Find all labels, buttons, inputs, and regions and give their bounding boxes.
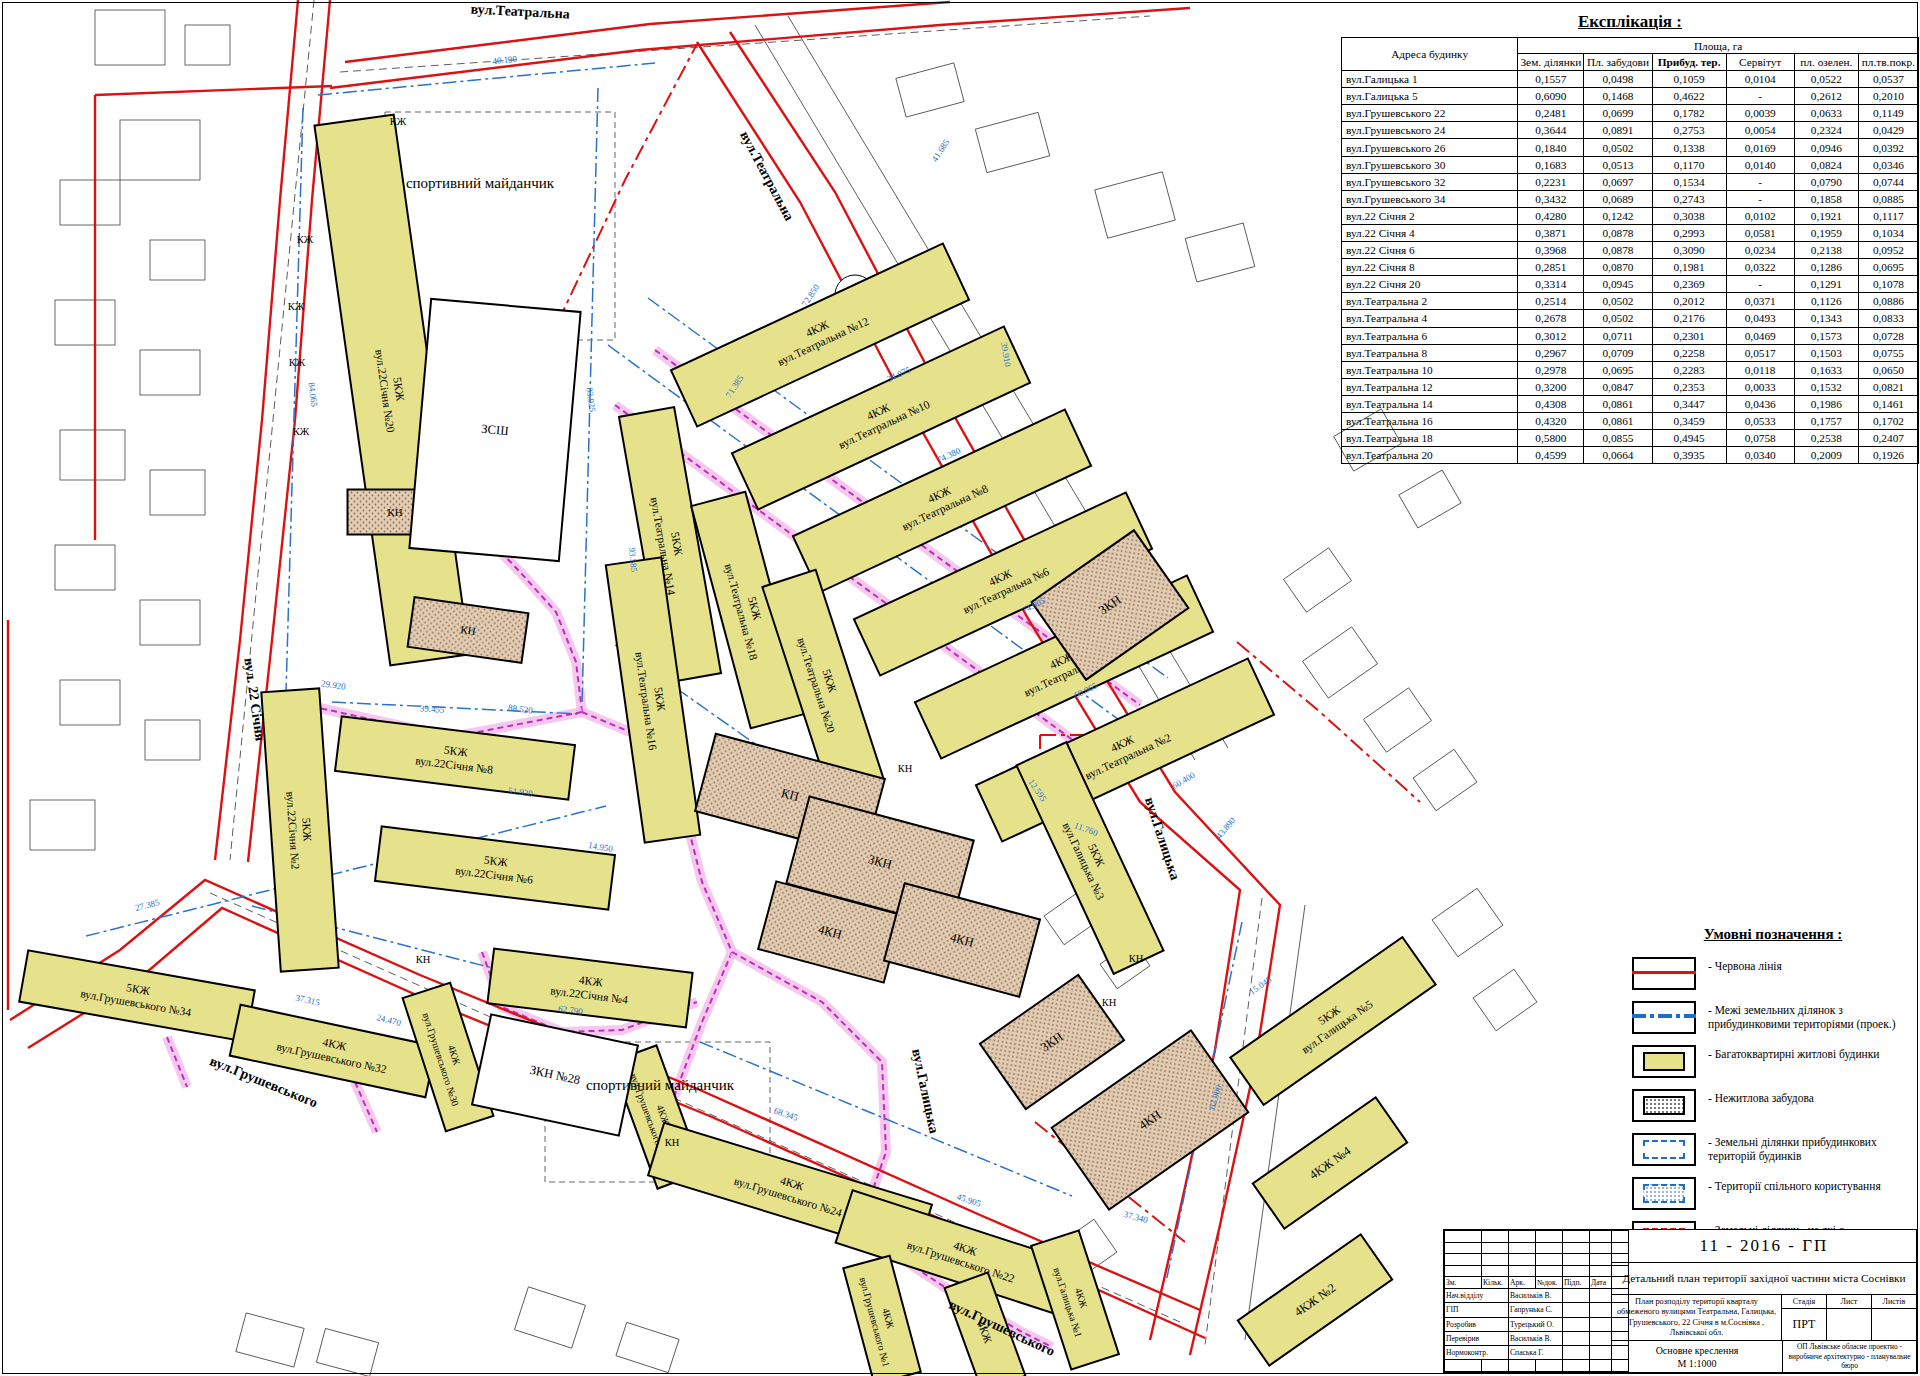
- street-name-label: вул.Галицька: [909, 1047, 942, 1134]
- value-cell: 0,2743: [1652, 190, 1726, 207]
- value-cell: 0,0744: [1858, 173, 1918, 190]
- stage-grid: Стадія Лист Листів ПРТ: [1782, 1295, 1916, 1340]
- dimension-label: 83.925: [585, 387, 598, 413]
- value-cell: 0,3012: [1518, 327, 1584, 344]
- table-row: вул.Грушевського 320,22310,06970,1534-0,…: [1342, 173, 1919, 190]
- address-cell: вул.Театральна 6: [1342, 327, 1518, 344]
- legend-item: - Червона лінія: [1632, 957, 1914, 990]
- value-cell: 0,0878: [1584, 224, 1652, 241]
- value-cell: 0,1338: [1652, 139, 1726, 156]
- title-block: Зм.Кільк.Арк.№док.Підп.ДатаНач.відділуВа…: [1443, 1229, 1917, 1373]
- value-cell: 0,0533: [1726, 412, 1794, 429]
- value-cell: 0,0322: [1726, 259, 1794, 276]
- street-name-label: вул.Театральна: [737, 129, 797, 223]
- drawing-sheet: 5КЖвул.22Січня №204КЖвул.Театральна №124…: [0, 0, 1920, 1376]
- value-cell: 0,2481: [1518, 105, 1584, 122]
- building: ЗКН: [980, 975, 1124, 1109]
- value-cell: 0,4945: [1652, 430, 1726, 447]
- building-type-label: КН: [665, 1137, 680, 1148]
- parcel-outline: [140, 350, 200, 395]
- value-cell: 0,1170: [1652, 156, 1726, 173]
- table-row: вул.Грушевського 220,24810,06990,17820,0…: [1342, 105, 1919, 122]
- dimension-label: 37.315: [294, 993, 321, 1008]
- value-cell: 0,1291: [1794, 276, 1858, 293]
- value-cell: 0,0697: [1584, 173, 1652, 190]
- parcel-outline: [55, 545, 115, 590]
- value-cell: 0,1633: [1794, 361, 1858, 378]
- value-cell: 0,0695: [1584, 361, 1652, 378]
- building-type-label: КЖ: [288, 301, 305, 312]
- value-cell: 0,1702: [1858, 412, 1918, 429]
- value-cell: 0,1503: [1794, 344, 1858, 361]
- value-cell: 0,0870: [1584, 259, 1652, 276]
- parcel-outline: [140, 600, 200, 645]
- address-cell: вул.Театральна 2: [1342, 293, 1518, 310]
- value-cell: 0,2851: [1518, 259, 1584, 276]
- table-row: вул.Грушевського 260,18400,05020,13380,0…: [1342, 139, 1919, 156]
- parcel-outline: [1473, 969, 1537, 1030]
- table-column-header: Пл. забудови: [1584, 54, 1652, 71]
- table-row: вул.22 Січня 40,38710,08780,29930,05810,…: [1342, 224, 1919, 241]
- value-cell: 0,0502: [1584, 293, 1652, 310]
- value-cell: 0,1126: [1794, 293, 1858, 310]
- table-row: вул.Театральна 100,29780,06950,22830,011…: [1342, 361, 1919, 378]
- dimension-label: 27.385: [134, 897, 161, 913]
- value-cell: 0,1059: [1652, 71, 1726, 88]
- value-cell: 0,0469: [1726, 327, 1794, 344]
- parcel-outline: [95, 10, 165, 65]
- buildings: 5КЖвул.22Січня №204КЖвул.Театральна №124…: [19, 115, 1435, 1376]
- stamp-col-header: Кільк.: [1482, 1277, 1509, 1289]
- value-cell: 0,0861: [1584, 412, 1652, 429]
- value-cell: 0,2369: [1652, 276, 1726, 293]
- address-cell: вул.Театральна 8: [1342, 344, 1518, 361]
- legend-item: - Території спільного користування: [1632, 1177, 1914, 1210]
- stage-label: Стадія: [1782, 1295, 1827, 1308]
- building-label: КН: [460, 623, 477, 637]
- parcel-outline: [616, 1322, 679, 1372]
- parcel-outline: [150, 470, 205, 515]
- value-cell: 0,2012: [1652, 293, 1726, 310]
- dimension-label: 68.345: [773, 1106, 800, 1123]
- table-row: вул.22 Січня 60,39680,08780,30900,02340,…: [1342, 242, 1919, 259]
- value-cell: 0,0537: [1858, 71, 1918, 88]
- value-cell: 0,0493: [1726, 310, 1794, 327]
- value-cell: 0,0033: [1726, 378, 1794, 395]
- value-cell: 0,0522: [1794, 71, 1858, 88]
- sheets-value: [1872, 1309, 1916, 1340]
- value-cell: 0,0855: [1584, 430, 1652, 447]
- building: 5КЖвул.Грушевського №34: [19, 950, 255, 1041]
- col-group-header: Площа, га: [1518, 38, 1919, 54]
- parcel-outline: [60, 680, 120, 725]
- value-cell: 0,2978: [1518, 361, 1584, 378]
- value-cell: 0,0039: [1726, 105, 1794, 122]
- address-cell: вул.Грушевського 26: [1342, 139, 1518, 156]
- legend-item: - Земельні ділянки прибудинкових територ…: [1632, 1133, 1914, 1166]
- building-label: 5КЖ: [300, 817, 314, 842]
- signature-name: Гапрунька С.: [1509, 1303, 1563, 1317]
- dimension-label: 29.920: [320, 678, 346, 691]
- value-cell: 0,1840: [1518, 139, 1584, 156]
- legend-label: - Нежитлова забудова: [1708, 1089, 1814, 1105]
- address-cell: вул.Грушевського 24: [1342, 122, 1518, 139]
- table-row: вул.Театральна 140,43080,08610,34470,043…: [1342, 395, 1919, 412]
- value-cell: 0,0517: [1726, 344, 1794, 361]
- street-name-label: вул.Театральна: [470, 1, 570, 21]
- building-type-label: КН: [898, 763, 913, 774]
- value-cell: 0,2514: [1518, 293, 1584, 310]
- value-cell: 0,0392: [1858, 139, 1918, 156]
- value-cell: 0,2407: [1858, 430, 1918, 447]
- parcel-outline: [236, 1313, 304, 1367]
- value-cell: 0,1532: [1794, 378, 1858, 395]
- table-row: вул.Театральна 180,58000,08550,49450,075…: [1342, 430, 1919, 447]
- table-row: вул.Театральна 80,29670,07090,22580,0517…: [1342, 344, 1919, 361]
- building: 4КН: [884, 883, 1040, 997]
- value-cell: 0,3432: [1518, 190, 1584, 207]
- table-row: вул.Галицька 50,60900,14680,4622-0,26120…: [1342, 88, 1919, 105]
- value-cell: 0,0945: [1584, 276, 1652, 293]
- value-cell: 0,0758: [1726, 430, 1794, 447]
- value-cell: 0,3871: [1518, 224, 1584, 241]
- value-cell: 0,1461: [1858, 395, 1918, 412]
- table-row: вул.22 Січня 20,42800,12420,30380,01020,…: [1342, 207, 1919, 224]
- signature-role: Розробив: [1445, 1317, 1509, 1331]
- parcel-outline: [1303, 627, 1378, 698]
- parcel-outline: [975, 112, 1049, 172]
- parcel-outline: [120, 120, 200, 180]
- table-column-header: пл. озелен.: [1794, 54, 1858, 71]
- value-cell: 0,2538: [1794, 430, 1858, 447]
- value-cell: 0,1782: [1652, 105, 1726, 122]
- stage-value: ПРТ: [1782, 1309, 1827, 1340]
- building: 5КЖвул.22Січня №6: [375, 826, 615, 909]
- dimension-label: 39.455: [420, 703, 446, 714]
- explication-panel: Експлікація : Адреса будинку Площа, га З…: [1341, 12, 1919, 464]
- blue-dashdot-swatch-icon: [1632, 1001, 1696, 1034]
- parcel-outline: [55, 300, 115, 345]
- building: ЗСШ: [409, 299, 580, 561]
- value-cell: 0,1986: [1794, 395, 1858, 412]
- value-cell: 0,1683: [1518, 156, 1584, 173]
- signature-name: Васильків В.: [1509, 1331, 1563, 1345]
- dimension-label: 43.890: [1214, 815, 1238, 841]
- address-cell: вул.22 Січня 2: [1342, 207, 1518, 224]
- signature-name: Спаська Г.: [1509, 1346, 1563, 1360]
- value-cell: 0,1981: [1652, 259, 1726, 276]
- dimension-label: 60.400: [1170, 770, 1197, 791]
- parcel-outline: [1399, 470, 1461, 528]
- value-cell: 0,0054: [1726, 122, 1794, 139]
- drawing-type: Основне креслення М 1:1000: [1612, 1341, 1783, 1372]
- value-cell: 0,2993: [1652, 224, 1726, 241]
- area-label: спортивний майданчик: [586, 1077, 735, 1093]
- sheets-label: Листів: [1872, 1295, 1916, 1308]
- legend-label: - Території спільного користування: [1708, 1177, 1881, 1193]
- dimension-label: 41.685: [930, 137, 952, 164]
- value-cell: 0,2176: [1652, 310, 1726, 327]
- value-cell: 0,0885: [1858, 190, 1918, 207]
- value-cell: 0,0699: [1584, 105, 1652, 122]
- signature-role: ГІП: [1445, 1303, 1509, 1317]
- table-row: вул.Грушевського 300,16830,05130,11700,0…: [1342, 156, 1919, 173]
- value-cell: 0,2353: [1652, 378, 1726, 395]
- building: 4КЖвул.Грушевського №1: [843, 1256, 920, 1376]
- stamp-col-header: Зм.: [1445, 1277, 1482, 1289]
- value-cell: 0,0711: [1584, 327, 1652, 344]
- value-cell: 0,0952: [1858, 242, 1918, 259]
- value-cell: 0,1534: [1652, 173, 1726, 190]
- table-column-header: пл.тв.покр.: [1858, 54, 1918, 71]
- parcel-outline: [1364, 688, 1432, 752]
- legend-label: - Межі земельних ділянок з прибудинковим…: [1708, 1001, 1914, 1032]
- value-cell: 0,0695: [1858, 259, 1918, 276]
- value-cell: 0,0847: [1584, 378, 1652, 395]
- table-column-header: Прибуд. тер.: [1652, 54, 1726, 71]
- table-row: вул.Театральна 160,43200,08610,34590,053…: [1342, 412, 1919, 429]
- signature-role: Нормоконтр.: [1445, 1346, 1509, 1360]
- value-cell: -: [1726, 88, 1794, 105]
- value-cell: 0,0664: [1584, 447, 1652, 464]
- table-column-header: Зем. ділянки: [1518, 54, 1584, 71]
- value-cell: 0,3459: [1652, 412, 1726, 429]
- col-header-address: Адреса будинку: [1342, 38, 1518, 71]
- stamp-col-header: Арк.: [1509, 1277, 1536, 1289]
- explication-table: Адреса будинку Площа, га Зем. ділянкиПл.…: [1341, 37, 1919, 464]
- table-row: вул.Грушевського 240,36440,08910,27530,0…: [1342, 122, 1919, 139]
- address-cell: вул.22 Січня 8: [1342, 259, 1518, 276]
- street-name-label: вул.Галицька: [1142, 795, 1183, 882]
- value-cell: 0,3090: [1652, 242, 1726, 259]
- value-cell: 0,4622: [1652, 88, 1726, 105]
- road-line: [340, 16, 1150, 72]
- legend-title: Умовні позначення :: [1632, 926, 1914, 943]
- value-cell: 0,2612: [1794, 88, 1858, 105]
- building-label: ЗСШ: [481, 422, 510, 438]
- parcel-outline: [1432, 888, 1503, 956]
- organization: ОП Львівське обласне проектно - виробнич…: [1783, 1341, 1916, 1372]
- value-cell: 0,3038: [1652, 207, 1726, 224]
- value-cell: 0,0946: [1794, 139, 1858, 156]
- value-cell: 0,0790: [1794, 173, 1858, 190]
- value-cell: 0,0371: [1726, 293, 1794, 310]
- value-cell: 0,0709: [1584, 344, 1652, 361]
- legend-item: - Багатоквартирні житлові будинки: [1632, 1045, 1914, 1078]
- value-cell: 0,3200: [1518, 378, 1584, 395]
- value-cell: 0,2009: [1794, 447, 1858, 464]
- value-cell: 0,0633: [1794, 105, 1858, 122]
- value-cell: 0,0429: [1858, 122, 1918, 139]
- table-row: вул.Театральна 200,45990,06640,39350,034…: [1342, 447, 1919, 464]
- value-cell: 0,5800: [1518, 430, 1584, 447]
- value-cell: 0,1926: [1858, 447, 1918, 464]
- value-cell: 0,1468: [1584, 88, 1652, 105]
- value-cell: 0,1117: [1858, 207, 1918, 224]
- value-cell: 0,0755: [1858, 344, 1918, 361]
- value-cell: 0,2301: [1652, 327, 1726, 344]
- address-cell: вул.Грушевського 22: [1342, 105, 1518, 122]
- address-cell: вул.Театральна 18: [1342, 430, 1518, 447]
- value-cell: 0,0886: [1858, 293, 1918, 310]
- value-cell: 0,0821: [1858, 378, 1918, 395]
- parcel-outline: [316, 1328, 378, 1376]
- explication-title: Експлікація :: [1341, 12, 1919, 32]
- dimension-label: 62.790: [557, 1003, 583, 1016]
- value-cell: 0,1034: [1858, 224, 1918, 241]
- table-column-header: Сервітут: [1726, 54, 1794, 71]
- parcel-outline: [30, 800, 95, 850]
- value-cell: 0,1286: [1794, 259, 1858, 276]
- stamp-col-header: №док.: [1536, 1277, 1563, 1289]
- value-cell: 0,4320: [1518, 412, 1584, 429]
- sheet-label: Лист: [1827, 1295, 1872, 1308]
- signature-role: Нач.відділу: [1445, 1289, 1509, 1303]
- title-block-signatures: Зм.Кільк.Арк.№док.Підп.ДатаНач.відділуВа…: [1444, 1230, 1612, 1372]
- road-line: [1245, 905, 1305, 1340]
- value-cell: 0,0340: [1726, 447, 1794, 464]
- value-cell: 0,0581: [1726, 224, 1794, 241]
- project-description: План розподілу території кварталу обмеже…: [1612, 1295, 1782, 1340]
- value-cell: 0,1078: [1858, 276, 1918, 293]
- sheet-value: [1827, 1309, 1872, 1340]
- value-cell: 0,4280: [1518, 207, 1584, 224]
- hatch-swatch-icon: [1632, 1089, 1696, 1122]
- address-cell: вул.Театральна 4: [1342, 310, 1518, 327]
- table-row: вул.Театральна 60,30120,07110,23010,0469…: [1342, 327, 1919, 344]
- address-cell: вул.Театральна 16: [1342, 412, 1518, 429]
- address-cell: вул.Театральна 20: [1342, 447, 1518, 464]
- signature-name: Васильків В.: [1509, 1289, 1563, 1303]
- legend-label: - Земельні ділянки прибудинкових територ…: [1708, 1133, 1914, 1164]
- address-cell: вул.22 Січня 6: [1342, 242, 1518, 259]
- parcel-outline: [60, 430, 125, 480]
- value-cell: 0,1573: [1794, 327, 1858, 344]
- parcel-outline: [1095, 172, 1176, 238]
- table-row: вул.Галицька 10,15570,04980,10590,01040,…: [1342, 71, 1919, 88]
- value-cell: 0,2967: [1518, 344, 1584, 361]
- parcel-outline: [60, 180, 120, 225]
- value-cell: 0,3644: [1518, 122, 1584, 139]
- building-type-label: КН: [1129, 953, 1144, 964]
- table-row: вул.Театральна 40,26780,05020,21760,0493…: [1342, 310, 1919, 327]
- value-cell: 0,0650: [1858, 361, 1918, 378]
- value-cell: 0,0728: [1858, 327, 1918, 344]
- value-cell: 0,1921: [1794, 207, 1858, 224]
- value-cell: 0,1858: [1794, 190, 1858, 207]
- value-cell: 0,1959: [1794, 224, 1858, 241]
- value-cell: 0,0346: [1858, 156, 1918, 173]
- parcel-outline: [145, 720, 200, 760]
- building-type-label: КЖ: [297, 234, 314, 245]
- common-use-path: [355, 1082, 377, 1132]
- value-cell: 0,1343: [1794, 310, 1858, 327]
- value-cell: 0,2231: [1518, 173, 1584, 190]
- table-row: вул.22 Січня 80,28510,08700,19810,03220,…: [1342, 259, 1919, 276]
- value-cell: 0,3968: [1518, 242, 1584, 259]
- parcel-outline: [1413, 749, 1477, 810]
- blue-dashed-swatch-icon: [1632, 1133, 1696, 1166]
- address-cell: вул.Грушевського 30: [1342, 156, 1518, 173]
- value-cell: 0,0878: [1584, 242, 1652, 259]
- value-cell: 0,1757: [1794, 412, 1858, 429]
- value-cell: -: [1726, 190, 1794, 207]
- address-cell: вул.Галицька 1: [1342, 71, 1518, 88]
- building-label: КН: [387, 506, 402, 518]
- parcel-outline: [185, 25, 230, 65]
- value-cell: 0,0169: [1726, 139, 1794, 156]
- dimension-label: 84.065: [307, 382, 320, 408]
- signature-name: Турецький О.: [1509, 1317, 1563, 1331]
- address-cell: вул.Театральна 12: [1342, 378, 1518, 395]
- value-cell: 0,3314: [1518, 276, 1584, 293]
- value-cell: 0,0102: [1726, 207, 1794, 224]
- value-cell: -: [1726, 173, 1794, 190]
- legend-label: - Червона лінія: [1708, 957, 1782, 973]
- value-cell: 0,0498: [1584, 71, 1652, 88]
- address-cell: вул.22 Січня 20: [1342, 276, 1518, 293]
- value-cell: 0,2283: [1652, 361, 1726, 378]
- value-cell: 0,0436: [1726, 395, 1794, 412]
- value-cell: 0,0140: [1726, 156, 1794, 173]
- value-cell: 0,0104: [1726, 71, 1794, 88]
- table-row: вул.22 Січня 200,33140,09450,2369-0,1291…: [1342, 276, 1919, 293]
- red-dash-line: [558, 44, 697, 322]
- address-cell: вул.Галицька 5: [1342, 88, 1518, 105]
- address-cell: вул.Грушевського 34: [1342, 190, 1518, 207]
- signature-role: Перевірив: [1445, 1331, 1509, 1345]
- value-cell: 0,1557: [1518, 71, 1584, 88]
- scale: М 1:1000: [1677, 1357, 1716, 1370]
- address-cell: вул.Театральна 10: [1342, 361, 1518, 378]
- boundary-line: [332, 702, 580, 714]
- stamp-col-header: Підп.: [1563, 1277, 1590, 1289]
- value-cell: 0,2010: [1858, 88, 1918, 105]
- value-cell: 0,0234: [1726, 242, 1794, 259]
- building: 5КЖвул.22Січня №8: [335, 716, 575, 799]
- building-type-label: КЖ: [390, 116, 407, 127]
- building: 4КЖ №2: [1238, 1234, 1392, 1365]
- legend-item: - Межі земельних ділянок з прибудинковим…: [1632, 1001, 1914, 1034]
- value-cell: 0,6090: [1518, 88, 1584, 105]
- document-title: Детальний план території західної частин…: [1612, 1263, 1916, 1296]
- dimension-label: 88.520: [507, 702, 533, 715]
- value-cell: 0,2258: [1652, 344, 1726, 361]
- value-cell: 0,2678: [1518, 310, 1584, 327]
- red-line: [95, 86, 332, 95]
- dimension-label: 51.920: [507, 785, 533, 798]
- value-cell: 0,0502: [1584, 139, 1652, 156]
- address-cell: вул.Грушевського 32: [1342, 173, 1518, 190]
- value-cell: -: [1726, 276, 1794, 293]
- table-row: вул.Театральна 20,25140,05020,20120,0371…: [1342, 293, 1919, 310]
- building-type-label: КН: [416, 954, 431, 965]
- value-cell: 0,4599: [1518, 447, 1584, 464]
- legend-label: - Багатоквартирні житлові будинки: [1708, 1045, 1879, 1061]
- value-cell: 0,1242: [1584, 207, 1652, 224]
- address-cell: вул.Театральна 14: [1342, 395, 1518, 412]
- building-type-label: КН: [1102, 997, 1117, 1008]
- value-cell: 0,2138: [1794, 242, 1858, 259]
- area-label: спортивний майданчик: [406, 175, 555, 191]
- legend-item: - Нежитлова забудова: [1632, 1089, 1914, 1122]
- parcel-outline: [1185, 223, 1255, 282]
- parcel-outline: [515, 1287, 586, 1348]
- table-row: вул.Театральна 120,32000,08470,23530,003…: [1342, 378, 1919, 395]
- building: 5КЖвул.22Січня №2: [261, 688, 338, 971]
- value-cell: 0,0824: [1794, 156, 1858, 173]
- value-cell: 0,3447: [1652, 395, 1726, 412]
